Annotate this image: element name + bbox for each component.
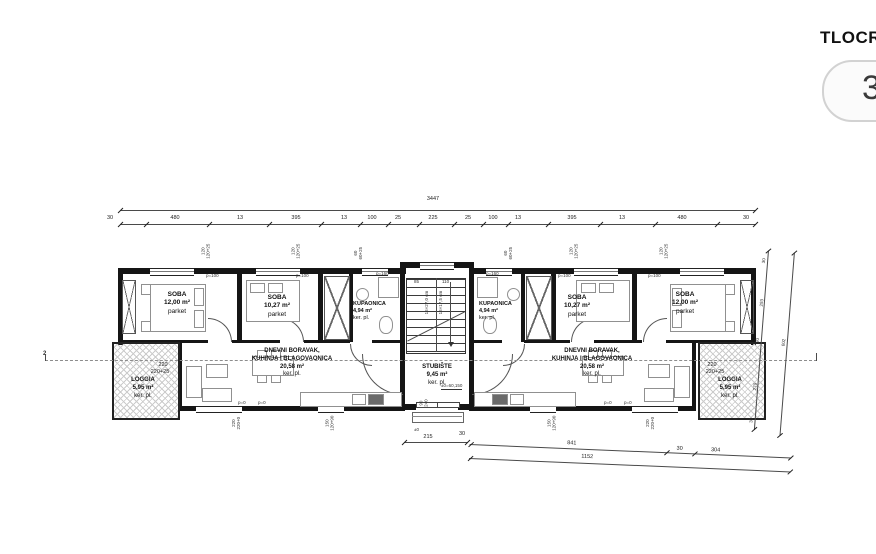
dim-tick [751,427,757,432]
right-dim-chain: 30 293 30 270 30 602 [747,250,805,438]
room-area: 5,95 m² [718,385,742,393]
stair-divider [436,278,437,352]
room-name: LOGGIA [718,377,742,385]
room-name: SOBA [264,294,290,302]
room-area: 10,27 m² [564,302,590,310]
dim-label: 13 [341,215,347,221]
window-spec-line: 120+25 [296,244,301,259]
parapet-label: p=100 [558,273,571,278]
window-spec: 150 120+90 [546,416,556,431]
dim-label: 100 [367,215,376,221]
wall [594,340,642,343]
door-spec-line: 240 [424,399,429,407]
wardrobe [740,280,754,334]
dim-label: 30 [748,418,754,423]
wardrobe [122,280,136,334]
stair-dim: 85 [414,279,419,284]
room-area: 4,94 m² [479,308,512,315]
dim-label: 304 [711,447,720,453]
dim-tick [777,433,783,438]
wall [632,272,637,342]
room-area: 9,45 m² [422,372,452,380]
pillow [250,283,265,293]
window [574,268,618,276]
kitchen-counter [474,392,576,407]
room-label-bath-right: KUPAONICA 4,94 m² ker. pl. [479,301,512,322]
loggia-dim: 220 [707,362,716,368]
parapet-label: p=0 [238,400,246,405]
dim-tick [753,208,759,214]
wall [237,272,242,342]
room-label-loggia-left: LOGGIA 5,95 m² ker. pl. [131,377,155,400]
nightstand [725,284,735,295]
room-area: 5,95 m² [131,385,155,393]
dim-label: 13 [619,215,625,221]
balcony-door [196,406,242,413]
dim-label: 841 [567,440,576,446]
window-spec-line: 120+25 [574,244,579,259]
wardrobe [324,276,350,340]
pillow [599,283,614,293]
floor-plan-page: TLOCRT 3 3447 30 480 13 395 13 100 25 22… [0,0,876,554]
dim-label: 30 [676,446,682,452]
window [150,268,194,276]
wall [524,340,570,343]
room-name: KUHINJA I BLAGOVAONICA [252,356,332,364]
section-marker-tick [45,354,46,361]
room-name: SOBA [564,294,590,302]
entry-door-spec: 90 240 [419,399,429,407]
window-spec: 60 60+25 [353,247,363,260]
room-area: 4,94 m² [353,308,386,315]
entry-steps [412,412,464,423]
dim-label: 225 [428,215,437,221]
stair-arrow [448,342,454,347]
kitchen-sink [352,394,366,405]
pillow [268,283,283,293]
dim-label: 30 [761,258,767,263]
nightstand [725,321,735,332]
parapet-label: p=0 [604,400,612,405]
window-spec: 150 120+90 [324,416,334,431]
room-floor: ker. pl. [252,371,332,379]
room-area: 10,27 m² [264,302,290,310]
entry-step-line [412,416,462,417]
room-floor: ker. pl. [353,315,386,322]
dim-label: 100 [488,215,497,221]
pillow [194,310,204,328]
dim-line [404,442,468,443]
door-spec: 220 220+0 [231,417,241,430]
window-spec-line: 120+90 [330,416,335,431]
kitchen-sink [510,394,524,405]
window [680,268,724,276]
dim-label: 215 [423,434,432,440]
sink [356,288,369,301]
wall [692,343,696,406]
window-spec-line: 120+90 [552,416,557,431]
room-floor: ker. pl. [479,315,512,322]
loggia-dim: 220+25 [706,369,725,375]
room-name: DNEVNI BORAVAK, [552,348,632,356]
room-label-soba1-right: SOBA 10,27 m² parket [564,294,590,319]
sofa [644,388,674,402]
dim-label: 1152 [581,454,593,460]
wall [372,340,400,343]
shower [378,277,399,298]
wall [318,272,323,342]
window [420,262,454,270]
dim-line [469,458,791,472]
room-area: 20,58 m² [552,364,632,372]
window [256,268,300,276]
stair-run-label: 16×27,0 cm [424,291,429,315]
pillow [581,283,596,293]
window-spec-line: 120+25 [206,244,211,259]
dim-label: 13 [515,215,521,221]
room-label-soba1-left: SOBA 12,00 m² parket [164,291,190,316]
door-spec-line: 220+0 [650,417,655,430]
wardrobe [526,276,552,340]
section-marker-tick [816,353,817,361]
dim-label: 30 [459,431,465,437]
room-name: STUBIŠTE [422,364,452,372]
dim-line [470,444,792,458]
dim-tick [788,455,794,460]
room-name: DNEVNI BORAVAK, [252,348,332,356]
nightstand [141,321,151,332]
dim-label: 30 [743,215,749,221]
sink [507,288,520,301]
sofa [186,366,202,398]
parapet-label: p=0 [624,400,632,405]
window-spec: 60 60+25 [503,247,513,260]
door-spec-line: 220+0 [236,417,241,430]
shower [477,277,498,298]
room-label-living-left: DNEVNI BORAVAK, KUHINJA I BLAGOVAONICA 2… [252,348,332,379]
pillow [194,288,204,306]
dim-label: 395 [567,215,576,221]
wall [232,340,280,343]
door-arc [643,318,667,342]
stove [368,394,384,405]
dim-label: 270 [752,383,758,391]
window-spec: 120 120+25 [658,244,668,259]
loggia-dim: 220+25 [151,369,170,375]
dim-tick [787,469,793,474]
room-label-living-right: DNEVNI BORAVAK, KUHINJA I BLAGOVAONICA 2… [552,348,632,379]
dim-label: 25 [395,215,401,221]
dim-label: 480 [170,215,179,221]
dim-label: 602 [781,339,787,347]
window-spec-line: 120+25 [664,244,669,259]
stair-level: ±0=60,150 [441,383,462,390]
room-label-bath-left: KUPAONICA 4,94 m² ker. pl. [353,301,386,322]
room-floor: ker. pl. [552,371,632,379]
coffee-table [648,364,670,378]
window-spec-line: 60+25 [508,247,513,260]
kitchen-counter [300,392,402,407]
loggia-dim: 220 [158,362,167,368]
dim-label: 25 [465,215,471,221]
room-floor: parket [264,311,290,319]
room-floor: parket [164,308,190,316]
room-label-soba2-right: SOBA 12,00 m² parket [672,291,698,316]
section-line [45,360,817,361]
entry-door-leaf [437,402,460,408]
window-spec: 120 120+25 [290,244,300,259]
nightstand [141,284,151,295]
room-floor: parket [672,308,698,316]
stove [492,394,508,405]
door-spec: 220 220+0 [645,417,655,430]
kitchen-window [530,406,556,413]
dim-label: 30 [755,338,761,343]
parapet-label: p=0 [258,400,266,405]
room-floor: parket [564,311,590,319]
gallery-page-badge[interactable]: 3 [822,60,876,122]
level-mark: ±0 [414,427,419,432]
wall [458,404,474,410]
room-name: SOBA [164,291,190,299]
dim-label: 480 [677,215,686,221]
stair-run-label: 16×17,5 cm [438,291,443,315]
dim-label: 13 [237,215,243,221]
wall [400,404,416,410]
window-spec-line: 60+25 [358,247,363,260]
sofa [202,388,232,402]
wall [474,340,502,343]
dim-label: 30 [107,215,113,221]
coffee-table [206,364,228,378]
wall [304,340,350,343]
window-spec: 120 120+25 [200,244,210,259]
stair-dim: 110 [442,279,449,284]
room-floor: ker. pl. [131,393,155,401]
room-name: LOGGIA [131,377,155,385]
kitchen-window [318,406,344,413]
room-area: 12,00 m² [164,299,190,307]
stair-walkline [450,282,451,342]
parapet-label: p=100 [206,273,219,278]
balcony-door [632,406,678,413]
door-arc [208,318,232,342]
room-label-soba2-left: SOBA 10,27 m² parket [264,294,290,319]
room-name: KUHINJA I BLAGOVAONICA [552,356,632,364]
room-name: SOBA [672,291,698,299]
gallery-page-number: 3 [862,69,876,108]
dim-total: 3447 [427,196,439,202]
parapet-label: p=160 [376,271,389,276]
window-spec: 120 120+25 [568,244,578,259]
dim-label: 293 [759,299,765,307]
dim-tick [753,222,759,228]
room-floor: ker. pl. [718,393,742,401]
dim-label: 395 [291,215,300,221]
parapet-label: p=160 [486,271,499,276]
dim-line [120,224,756,225]
dim-line [120,210,756,211]
parapet-label: p=100 [296,273,309,278]
room-label-loggia-right: LOGGIA 5,95 m² ker. pl. [718,377,742,400]
room-area: 12,00 m² [672,299,698,307]
wall [521,272,525,342]
panel-title: TLOCRT [820,28,876,48]
bottom-dim-chain: 841 30 304 1152 [469,436,792,479]
parapet-label: p=100 [648,273,661,278]
sofa [674,366,690,398]
room-area: 20,58 m² [252,364,332,372]
